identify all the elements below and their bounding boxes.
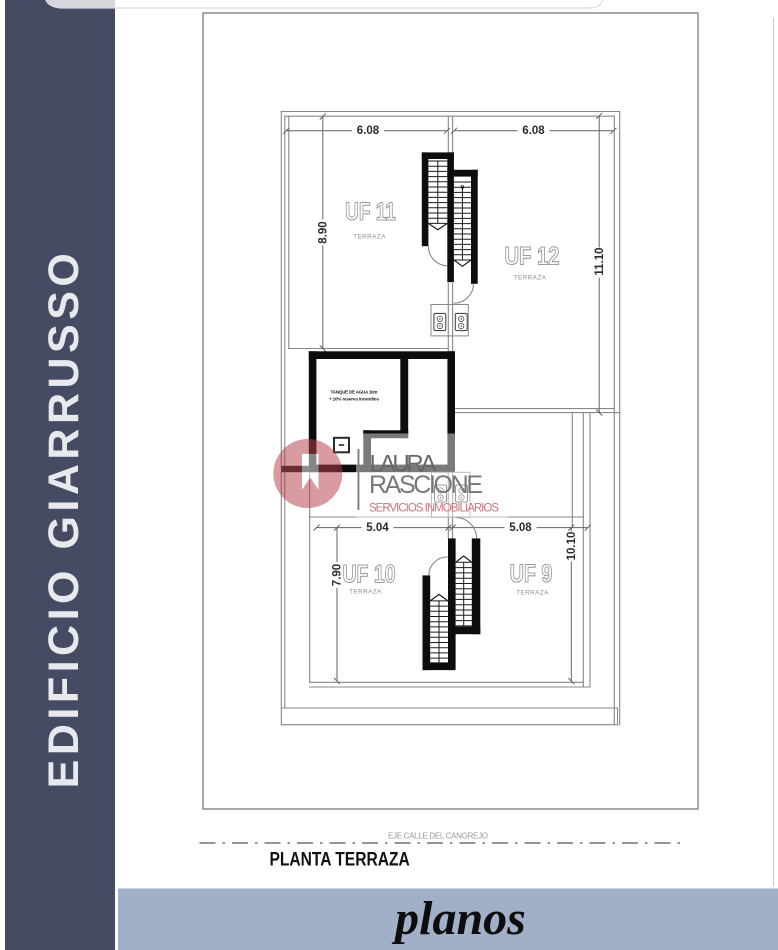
svg-text:planos: planos	[391, 892, 526, 945]
svg-text:EDIFICIO GIARRUSSO: EDIFICIO GIARRUSSO	[40, 249, 88, 789]
svg-text:+ 10% reserva incendios: + 10% reserva incendios	[329, 397, 379, 402]
svg-text:8.90: 8.90	[318, 221, 330, 243]
svg-text:SERVICIOS INMOBILIARIOS: SERVICIOS INMOBILIARIOS	[369, 503, 499, 515]
svg-text:6.08: 6.08	[357, 125, 380, 137]
svg-text:TERRAZA: TERRAZA	[516, 590, 549, 597]
svg-text:5.08: 5.08	[509, 522, 532, 534]
svg-text:11.10: 11.10	[594, 247, 606, 275]
svg-text:RASCIONE: RASCIONE	[369, 471, 483, 499]
svg-text:TANQUE DE AGUA 10m: TANQUE DE AGUA 10m	[331, 390, 378, 395]
svg-text:10.10: 10.10	[566, 532, 578, 561]
svg-text:UF 11: UF 11	[345, 197, 396, 225]
svg-text:5.04: 5.04	[366, 522, 389, 534]
svg-text:PLANTA TERRAZA: PLANTA TERRAZA	[270, 848, 410, 870]
svg-text:TERRAZA: TERRAZA	[514, 275, 547, 282]
svg-text:TERRAZA: TERRAZA	[353, 234, 386, 241]
svg-text:UF 12: UF 12	[504, 241, 559, 270]
svg-text:6.08: 6.08	[522, 125, 545, 137]
svg-text:TERRAZA: TERRAZA	[349, 589, 382, 596]
svg-text:UF 9: UF 9	[510, 560, 553, 588]
svg-text:UF 10: UF 10	[342, 560, 395, 588]
svg-text:EJE CALLE DEL CANGREJO: EJE CALLE DEL CANGREJO	[388, 832, 488, 841]
